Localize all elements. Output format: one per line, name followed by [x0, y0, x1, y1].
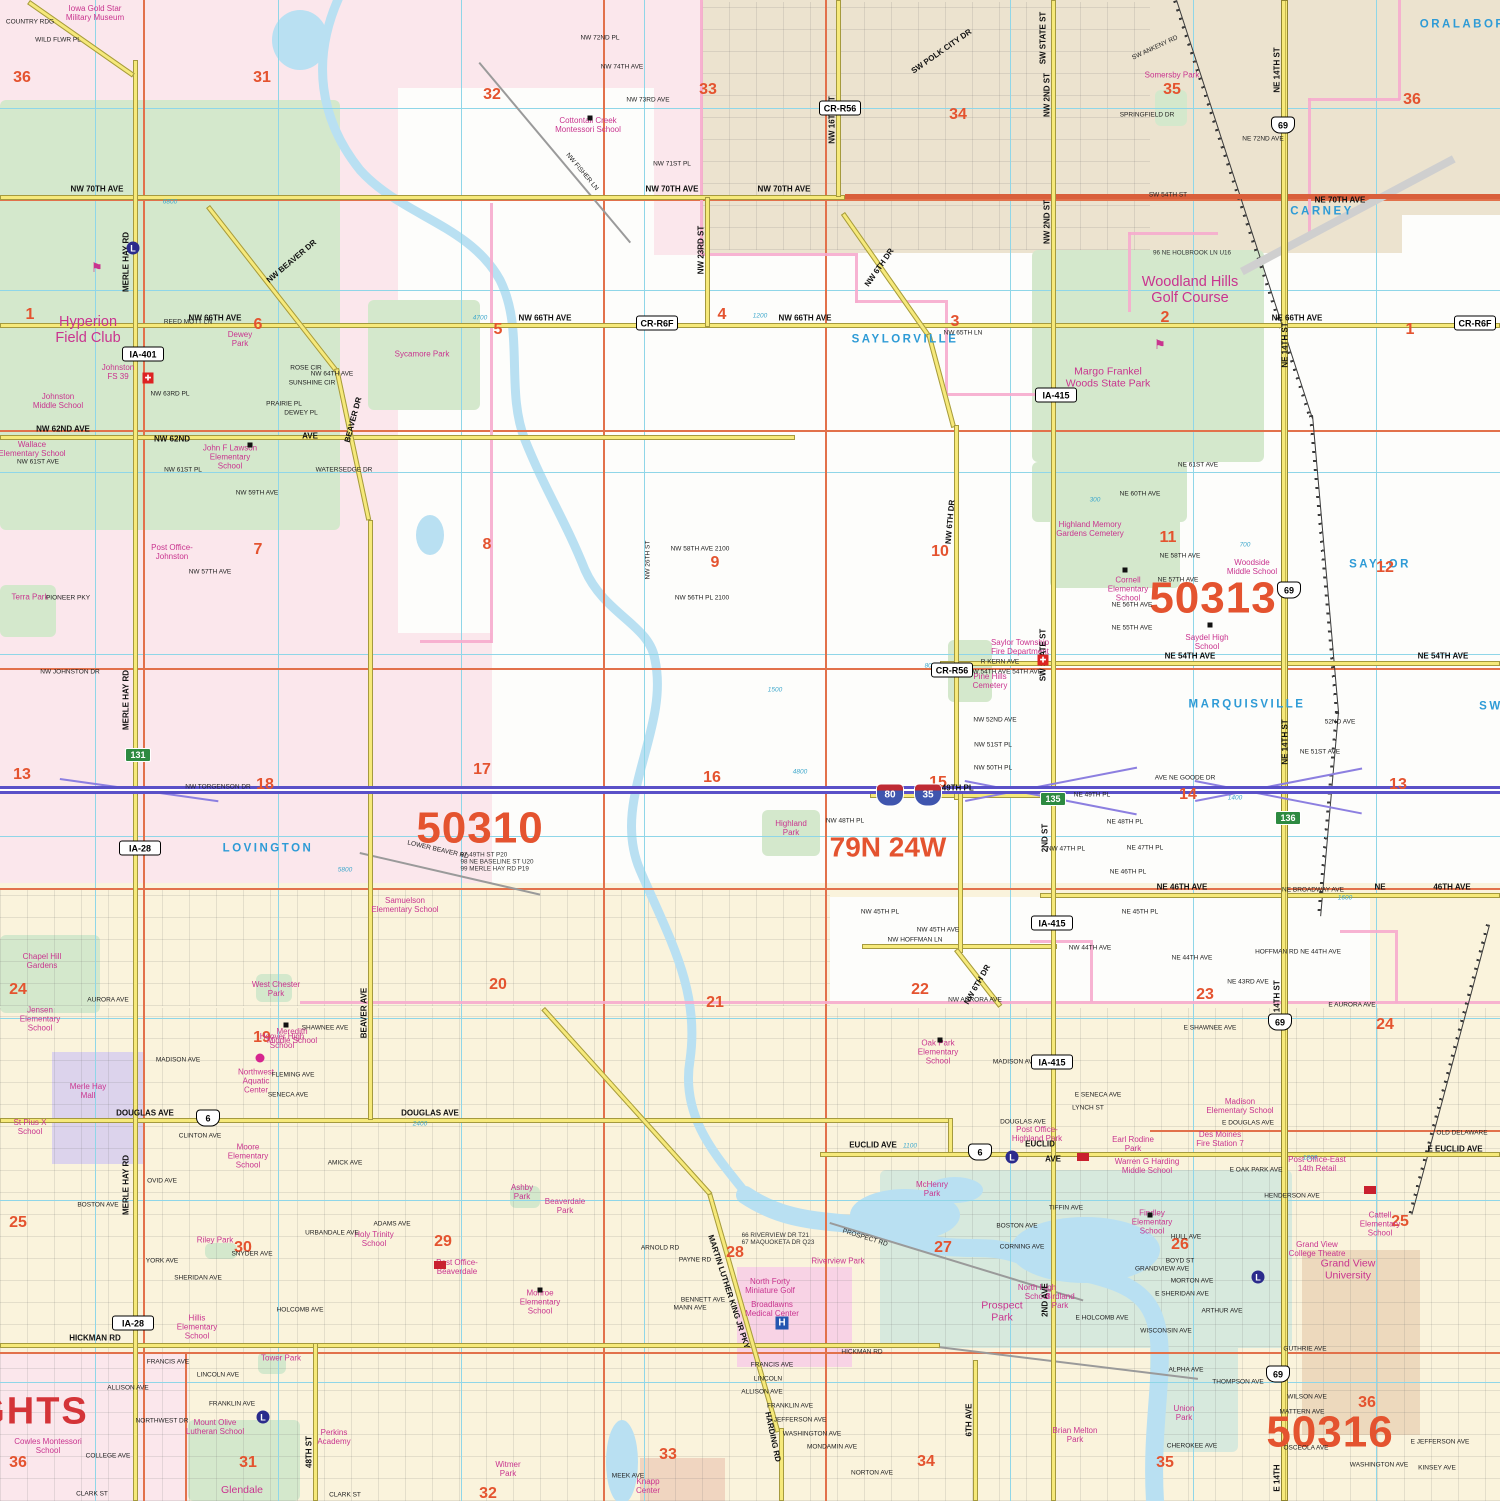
street-name-label: NE 47TH PL	[1127, 844, 1164, 851]
poi-label: Tower Park	[261, 1355, 301, 1364]
street-name-label: FRANKLIN AVE	[209, 1400, 255, 1407]
road-name-label: EUCLID AVE	[849, 1142, 897, 1151]
city-limit-boundary	[1308, 98, 1400, 101]
street-name-label: NW 59TH AVE	[236, 489, 279, 496]
poi-label: Johnston FS 39	[102, 364, 134, 382]
city-limit-boundary	[945, 300, 948, 395]
street-map-canvas[interactable]: 80356969696966IA-401IA-28IA-28IA-415IA-4…	[0, 0, 1500, 1501]
school-icon	[588, 116, 593, 121]
library-icon: L	[127, 242, 140, 255]
street-name-label: SNYDER AVE	[231, 1250, 272, 1257]
map-grid-number: 11	[1160, 529, 1177, 547]
map-grid-line	[1376, 0, 1377, 1501]
street-name-label: MANN AVE	[673, 1304, 706, 1311]
street-name-label: SHERIDAN AVE	[174, 1274, 222, 1281]
street-name-label: LINCOLN AVE	[197, 1371, 239, 1378]
map-grid-number: 31	[253, 69, 271, 87]
poi-label: Glendale	[221, 1485, 263, 1497]
street-name-label: NW 61ST AVE	[17, 458, 59, 465]
street-name-label: NE 72ND AVE	[1242, 135, 1283, 142]
exit-135-shield: 135	[1040, 792, 1066, 806]
street-name-label: NW TORGENSON DR	[185, 783, 251, 790]
road-name-label: BEAVER AVE	[361, 988, 370, 1039]
poi-label: Monroe Elementary School	[520, 1290, 560, 1317]
road-name-label: NW 70TH AVE	[646, 186, 699, 195]
road-name-label: AVE	[302, 433, 318, 442]
road-name-label: NE 66TH AVE	[1272, 315, 1323, 324]
street-name-label: NE 48TH PL	[1107, 818, 1144, 825]
map-grid-line	[0, 472, 1500, 473]
street-name-label: NE 51ST AVE	[1300, 748, 1340, 755]
road-name-label: NE 54TH AVE	[1165, 653, 1216, 662]
map-grid-number: 3	[951, 313, 960, 331]
street-name-label: COLLEGE AVE	[86, 1452, 131, 1459]
street-name-label: NW JOHNSTON DR	[40, 668, 99, 675]
street-name-label: NW 64TH AVE	[311, 370, 354, 377]
poi-label: Witmer Park	[495, 1461, 520, 1479]
community-label: ORALABOR	[1420, 19, 1500, 32]
map-grid-number: 35	[1156, 1454, 1174, 1472]
community-label: SAYLORVILLE	[852, 334, 959, 347]
street-name-label: WILSON AVE	[1287, 1393, 1327, 1400]
pond	[416, 515, 444, 555]
street-name-label: URBANDALE AVE	[305, 1229, 359, 1236]
map-grid-number: 29	[434, 1233, 452, 1251]
map-grid-number: 2	[1161, 309, 1170, 327]
street-name-label: NE 55TH AVE	[1112, 624, 1153, 631]
poi-label: Beaverdale Park	[545, 1198, 585, 1216]
nw-62nd-ave	[0, 435, 795, 440]
street-name-label: PAYNE RD	[679, 1256, 711, 1263]
map-grid-number: 12	[1376, 559, 1394, 577]
road-name-label: DOUGLAS AVE	[116, 1110, 174, 1119]
poi-label: Samuelson Elementary School	[371, 897, 438, 915]
map-grid-line	[1010, 0, 1011, 1501]
nw-70th-ave	[0, 195, 845, 200]
community-label: LOVINGTON	[223, 843, 314, 856]
street-name-label: BOYD ST	[1166, 1257, 1195, 1264]
street-name-label: FRANKLIN AVE	[767, 1402, 813, 1409]
street-name-label: NW 51ST PL	[974, 741, 1012, 748]
school-icon	[938, 1038, 943, 1043]
street-name-label: FRANCIS AVE	[751, 1361, 794, 1368]
map-grid-number: 35	[1163, 81, 1181, 99]
ia401-shield: IA-401	[122, 347, 164, 362]
street-name-label: NW 44TH AVE	[1069, 944, 1112, 951]
i35-shield: 35	[915, 785, 941, 806]
street-name-label: AMICK AVE	[328, 1159, 363, 1166]
street-name-label: NW 61ST PL	[164, 466, 202, 473]
street-name-label: NW 63RD PL	[150, 390, 189, 397]
poi-label: Perkins Academy	[317, 1429, 350, 1447]
golf-flag-icon: ⚑	[1154, 337, 1166, 353]
city-name-cutoff: GHTS	[0, 1391, 89, 1434]
community-label: CARNEY	[1290, 206, 1354, 219]
street-name-label: NW HOFFMAN LN	[888, 936, 943, 943]
map-grid-number: 1	[1406, 321, 1415, 339]
address-range-label: 1400	[1228, 794, 1242, 801]
guthrie-section	[0, 1352, 1500, 1354]
section-v-825	[825, 0, 827, 1501]
post-office-icon	[434, 1261, 446, 1269]
section-54th	[0, 668, 1500, 670]
poi-label: Cattell Elementary School	[1360, 1212, 1400, 1239]
address-range-label: 1600	[1338, 894, 1352, 901]
cr-r6f-shield: CR-R6F	[636, 316, 678, 331]
road-name-label: NW 2ND ST	[1044, 200, 1053, 244]
street-name-label: NW 26TH ST	[644, 541, 651, 580]
road-name-label: NW 23RD ST	[698, 226, 707, 274]
golf-flag-icon: ⚑	[91, 260, 103, 276]
address-range-label: 700	[1240, 541, 1251, 548]
street-name-label: 52ND AVE	[1325, 718, 1356, 725]
map-grid-number: 20	[489, 976, 507, 994]
cr-r56-shield: CR-R56	[931, 663, 973, 678]
poi-label: Saydel High School	[1185, 634, 1228, 652]
map-grid-number: 24	[9, 981, 27, 999]
address-range-label: 4800	[793, 768, 807, 775]
road-name-label: MERLE HAY RD	[123, 670, 132, 730]
map-grid-line	[95, 0, 96, 1501]
poi-label: Warren G Harding Middle School	[1115, 1158, 1180, 1176]
map-grid-number: 36	[13, 69, 31, 87]
street-name-label: ARTHUR AVE	[1202, 1307, 1243, 1314]
street-name-label: CLARK ST	[329, 1491, 361, 1498]
poi-label: Ashby Park	[511, 1184, 533, 1202]
school-icon	[1123, 568, 1128, 573]
street-name-label: NORTON AVE	[851, 1469, 893, 1476]
street-name-label: YORK AVE	[146, 1257, 178, 1264]
nw-6th-dr	[954, 425, 959, 800]
map-grid-number: 36	[9, 1454, 27, 1472]
city-limit-boundary	[300, 1001, 1500, 1004]
road-name-label: NE 14TH ST	[1274, 47, 1283, 92]
street-name-label: NE 45TH PL	[1122, 908, 1159, 915]
city-limit-boundary	[1398, 0, 1401, 100]
street-name-label: NW 74TH AVE	[601, 63, 644, 70]
douglas-euclid-connector	[948, 1118, 953, 1156]
poi-label: Holy Trinity School	[354, 1231, 394, 1249]
street-name-label: CLARK ST	[76, 1490, 108, 1497]
street-name-label: GRANDVIEW AVE	[1135, 1265, 1189, 1272]
fire-station-icon: ✚	[1038, 655, 1049, 666]
poi-label: Wallace Elementary School	[0, 441, 66, 459]
map-grid-line	[0, 836, 1500, 837]
map-grid-line	[278, 0, 279, 1501]
road-name-label: NE 14TH ST	[1282, 322, 1291, 367]
street-name-label: NW 54TH AVE 54TH AVE	[968, 668, 1042, 675]
street-name-label: BOSTON AVE	[77, 1201, 118, 1208]
street-name-label: E HOLCOMB AVE	[1076, 1314, 1129, 1321]
map-grid-number: 16	[703, 769, 721, 787]
street-name-label: NE 60TH AVE	[1120, 490, 1161, 497]
map-grid-number: 33	[699, 81, 717, 99]
street-name-label: NE 44TH AVE	[1172, 954, 1213, 961]
map-grid-number: 13	[1389, 776, 1407, 794]
poi-label: Cornell Elementary School	[1108, 577, 1148, 604]
street-name-label: ALPHA AVE	[1169, 1366, 1204, 1373]
poi-label: Hillis Elementary School	[177, 1315, 217, 1342]
school-icon	[538, 1288, 543, 1293]
map-grid-number: 24	[1376, 1016, 1394, 1034]
ne-54th-ave	[940, 661, 1500, 666]
map-grid-line	[1193, 0, 1194, 1501]
poi-label: West Chester Park	[252, 981, 300, 999]
poi-label: Broadlawns Medical Center	[745, 1301, 799, 1319]
poi-label: Terra Park	[12, 594, 49, 603]
street-name-label: BOSTON AVE	[996, 1222, 1037, 1229]
street-name-label: PIONEER PKY	[46, 594, 90, 601]
road-name-label: NE 14TH ST	[1282, 719, 1291, 764]
street-name-label: NE 46TH PL	[1110, 868, 1147, 875]
poi-label: Des Moines Fire Station 7	[1196, 1131, 1244, 1149]
street-name-label: GUTHRIE AVE	[1283, 1345, 1326, 1352]
street-name-label: OLD DELAWARE	[1436, 1129, 1487, 1136]
poi-label: Madison Elementary School	[1206, 1098, 1273, 1116]
street-name-label: NW 58TH AVE 2100	[671, 545, 730, 552]
map-grid-number: 6	[254, 316, 263, 334]
street-name-label: WASHINGTON AVE	[1350, 1461, 1408, 1468]
road-name-label: NW 66TH AVE	[519, 315, 572, 324]
map-grid-line	[0, 108, 1500, 109]
map-grid-number: 14	[1179, 786, 1197, 804]
city-limit-boundary	[1395, 930, 1398, 1003]
hickman-rd	[0, 1343, 940, 1348]
poi-label: Chapel Hill Gardens	[23, 953, 62, 971]
us6-shield: 6	[196, 1110, 220, 1127]
poi-label: North Forty Miniature Golf	[745, 1278, 795, 1296]
street-name-label: MADISON AVE	[156, 1056, 200, 1063]
street-name-label: TIFFIN AVE	[1049, 1204, 1083, 1211]
street-name-label: WISCONSIN AVE	[1140, 1327, 1192, 1334]
street-name-label: ARNOLD RD	[641, 1244, 679, 1251]
street-name-label: NW 71ST PL	[653, 160, 691, 167]
road-name-label: EUCLID	[1025, 1141, 1055, 1150]
street-name-label: SPRINGFIELD DR	[1120, 111, 1175, 118]
road-name-label: 2ND AVE	[1042, 1283, 1051, 1317]
map-grid-number: 4	[718, 306, 727, 324]
us69-shield: 69	[1266, 1366, 1290, 1383]
merle-hay-rd	[133, 60, 138, 1501]
map-grid-number: 31	[239, 1454, 257, 1472]
street-name-label: HOFFMAN RD NE 44TH AVE	[1255, 948, 1341, 955]
address-range-label: 6800	[163, 198, 177, 205]
street-name-label: NW 52ND AVE	[973, 716, 1016, 723]
poi-label: Sycamore Park	[395, 351, 450, 360]
poi-label: Pine Hills Cemetery	[973, 673, 1008, 691]
street-name-label: E AURORA AVE	[1328, 1001, 1375, 1008]
road-name-label: E EUCLID AVE	[1427, 1146, 1482, 1155]
poi-label: McHenry Park	[916, 1181, 948, 1199]
street-name-label: NW 47TH PL	[1047, 845, 1085, 852]
ne-46th-ave	[1040, 893, 1500, 898]
map-grid-line	[0, 1200, 1500, 1201]
us6-shield: 6	[968, 1144, 992, 1161]
map-grid-number: 9	[711, 554, 720, 572]
map-note-label: 87 49TH ST P20 98 NE BASELINE ST U20 99 …	[460, 851, 533, 872]
street-name-label: ADAMS AVE	[373, 1220, 410, 1227]
street-name-label: NW 56TH PL 2100	[675, 594, 729, 601]
post-office-icon	[1364, 1186, 1376, 1194]
road-name-label: NW 70TH AVE	[758, 186, 811, 195]
nw-66th-ave	[0, 323, 1500, 328]
street-name-label: E DOUGLAS AVE	[1222, 1119, 1274, 1126]
road-name-label: 46TH AVE	[1433, 884, 1470, 893]
city-limit-boundary	[1128, 232, 1131, 312]
map-grid-number: 5	[494, 321, 503, 339]
address-range-label: 5800	[338, 866, 352, 873]
map-grid-line	[0, 290, 1500, 291]
road-name-label: NW 66TH AVE	[779, 315, 832, 324]
street-name-label: HOLCOMB AVE	[277, 1306, 324, 1313]
map-grid-line	[644, 0, 645, 1501]
map-note-label: 66 RIVERVIEW DR T21 67 MAQUOKETA DR Q23	[742, 1232, 815, 1246]
city-limit-boundary	[1128, 232, 1218, 235]
poi-label: Post Office- Johnston	[151, 544, 193, 562]
poi-label: Merle Hay Mall	[70, 1083, 106, 1101]
street-name-label: CLINTON AVE	[179, 1132, 221, 1139]
poi-label: Moore Elementary School	[228, 1144, 268, 1171]
city-limit-boundary	[700, 253, 855, 256]
street-name-label: JEFFERSON AVE	[774, 1416, 827, 1423]
poi-label: Cowles Montessori School	[14, 1438, 82, 1456]
poi-label: Highland Park	[775, 820, 807, 838]
street-name-label: OSCEOLA AVE	[1283, 1444, 1328, 1451]
fire-station-icon: ✚	[143, 373, 154, 384]
street-name-label: CHEROKEE AVE	[1167, 1442, 1217, 1449]
school-icon	[284, 1023, 289, 1028]
poi-label: Jensen Elementary School	[20, 1007, 60, 1034]
street-name-label: THOMPSON AVE	[1212, 1378, 1264, 1385]
poi-label: Mount Olive Lutheran School	[186, 1419, 244, 1437]
map-note-label: 96 NE HOLBROOK LN U16	[1153, 249, 1231, 256]
street-name-label: FRANCIS AVE	[147, 1358, 190, 1365]
street-name-label: AURORA AVE	[87, 996, 128, 1003]
map-grid-number: 32	[483, 86, 501, 104]
harding-rd	[779, 1428, 784, 1501]
poi-label: Brian Melton Park	[1053, 1427, 1098, 1445]
map-grid-number: 1	[26, 306, 35, 324]
street-name-label: NW 50TH PL	[974, 764, 1012, 771]
city-limit-boundary	[1340, 930, 1395, 933]
poi-label: Grand View University	[1321, 1258, 1376, 1282]
map-grid-number: 8	[483, 536, 492, 554]
street-name-label: NE BROADWAY AVE	[1282, 886, 1344, 893]
road-name-label: SW STATE ST	[1040, 12, 1049, 65]
street-name-label: NW 72ND PL	[580, 34, 619, 41]
street-name-label: SHAWNEE AVE	[302, 1024, 349, 1031]
street-name-label: HENDERSON AVE	[1264, 1192, 1320, 1199]
street-name-label: OVID AVE	[147, 1177, 177, 1184]
map-grid-number: 10	[931, 543, 949, 561]
street-name-label: NORTHWEST DR	[136, 1417, 189, 1424]
city-limit-boundary	[855, 253, 858, 303]
map-grid-number: 27	[934, 1239, 952, 1257]
map-grid-number: 23	[1196, 986, 1214, 1004]
poi-label: Iowa Gold Star Military Museum	[66, 5, 124, 23]
map-grid-number: 21	[706, 994, 724, 1012]
street-name-label: NE 57TH AVE	[1158, 576, 1199, 583]
us69-shield: 69	[1271, 117, 1295, 134]
street-name-label: E SHERIDAN AVE	[1155, 1290, 1209, 1297]
douglas-ave	[0, 1118, 950, 1123]
exit-131-shield: 131	[125, 748, 151, 762]
street-name-label: E JEFFERSON AVE	[1411, 1438, 1470, 1445]
map-grid-number: 18	[256, 776, 274, 794]
street-name-label: NW 73RD AVE	[626, 96, 669, 103]
street-name-label: KINSEY AVE	[1418, 1464, 1456, 1471]
street-name-label: NE 58TH AVE	[1160, 552, 1201, 559]
street-name-label: HICKMAN RD	[841, 1348, 882, 1355]
aquatic-center-icon	[256, 1054, 265, 1063]
street-name-label: MATTERN AVE	[1280, 1408, 1325, 1415]
street-name-label: WILD FLWR PL	[35, 36, 81, 43]
street-name-label: WASHINGTON AVE	[783, 1430, 841, 1437]
street-name-label: LINCOLN	[754, 1375, 782, 1382]
poi-label: Johnston Middle School	[33, 393, 83, 411]
road-name-label: NE	[1374, 884, 1385, 893]
street-name-label: NE 56TH AVE	[1112, 601, 1153, 608]
street-name-label: DOUGLAS AVE	[1000, 1118, 1046, 1125]
street-name-label: PRAIRIE PL	[266, 400, 302, 407]
street-name-label: NE 49TH PL	[1074, 791, 1111, 798]
section-430	[0, 430, 1500, 432]
poi-label: Riley Park	[197, 1237, 233, 1246]
ia415-shield: IA-415	[1031, 1055, 1073, 1070]
school-icon	[1208, 623, 1213, 628]
street-name-label: SUNSHINE CIR	[289, 379, 336, 386]
township-range-label: 79N 24W	[830, 831, 947, 862]
street-name-label: CORNING AVE	[1000, 1243, 1045, 1250]
road-name-label: NW 62ND AVE	[36, 426, 90, 435]
school-icon	[248, 443, 253, 448]
poi-label: Margo Frankel Woods State Park	[1066, 366, 1150, 390]
poi-label: Prospect Park	[981, 1300, 1022, 1324]
street-name-label: AVE NE GOODE DR	[1155, 774, 1216, 781]
street-name-label: HULL AVE	[1171, 1233, 1201, 1240]
address-range-label: 1100	[903, 1142, 917, 1149]
road-name-label: NE 46TH AVE	[1157, 884, 1208, 893]
street-name-label: E SENECA AVE	[1075, 1091, 1121, 1098]
street-name-label: WATERSEDGE DR	[316, 466, 373, 473]
city-limit-boundary	[700, 0, 703, 253]
library-icon: L	[1006, 1151, 1019, 1164]
i80-shield: 80	[877, 785, 903, 806]
street-name-label: NE 43RD AVE	[1227, 978, 1268, 985]
map-grid-number: 28	[726, 1244, 744, 1262]
street-name-label: MORTON AVE	[1171, 1277, 1214, 1284]
street-name-label: NW 65TH LN	[944, 329, 983, 336]
map-grid-number: 33	[659, 1446, 677, 1464]
street-name-label: DEWEY PL	[284, 409, 317, 416]
map-grid-number: 34	[949, 106, 967, 124]
street-name-label: NW 57TH AVE	[189, 568, 232, 575]
road-name-label: NW 2ND ST	[1044, 73, 1053, 117]
hospital-icon: H	[776, 1317, 789, 1330]
poi-label: Riverview Park	[811, 1258, 864, 1267]
library-icon: L	[257, 1411, 270, 1424]
pond	[272, 10, 328, 70]
pond	[606, 1420, 638, 1501]
ia415-shield: IA-415	[1035, 388, 1077, 403]
poi-label: St Pius X School	[14, 1119, 47, 1137]
library-icon: L	[1252, 1271, 1265, 1284]
street-name-label: ALLISON AVE	[107, 1384, 148, 1391]
road-name-label: 6TH AVE	[966, 1404, 975, 1437]
address-range-label: 4700	[473, 314, 487, 321]
post-office-icon	[1077, 1153, 1089, 1161]
poi-label: Oak Park Elementary School	[918, 1040, 958, 1067]
